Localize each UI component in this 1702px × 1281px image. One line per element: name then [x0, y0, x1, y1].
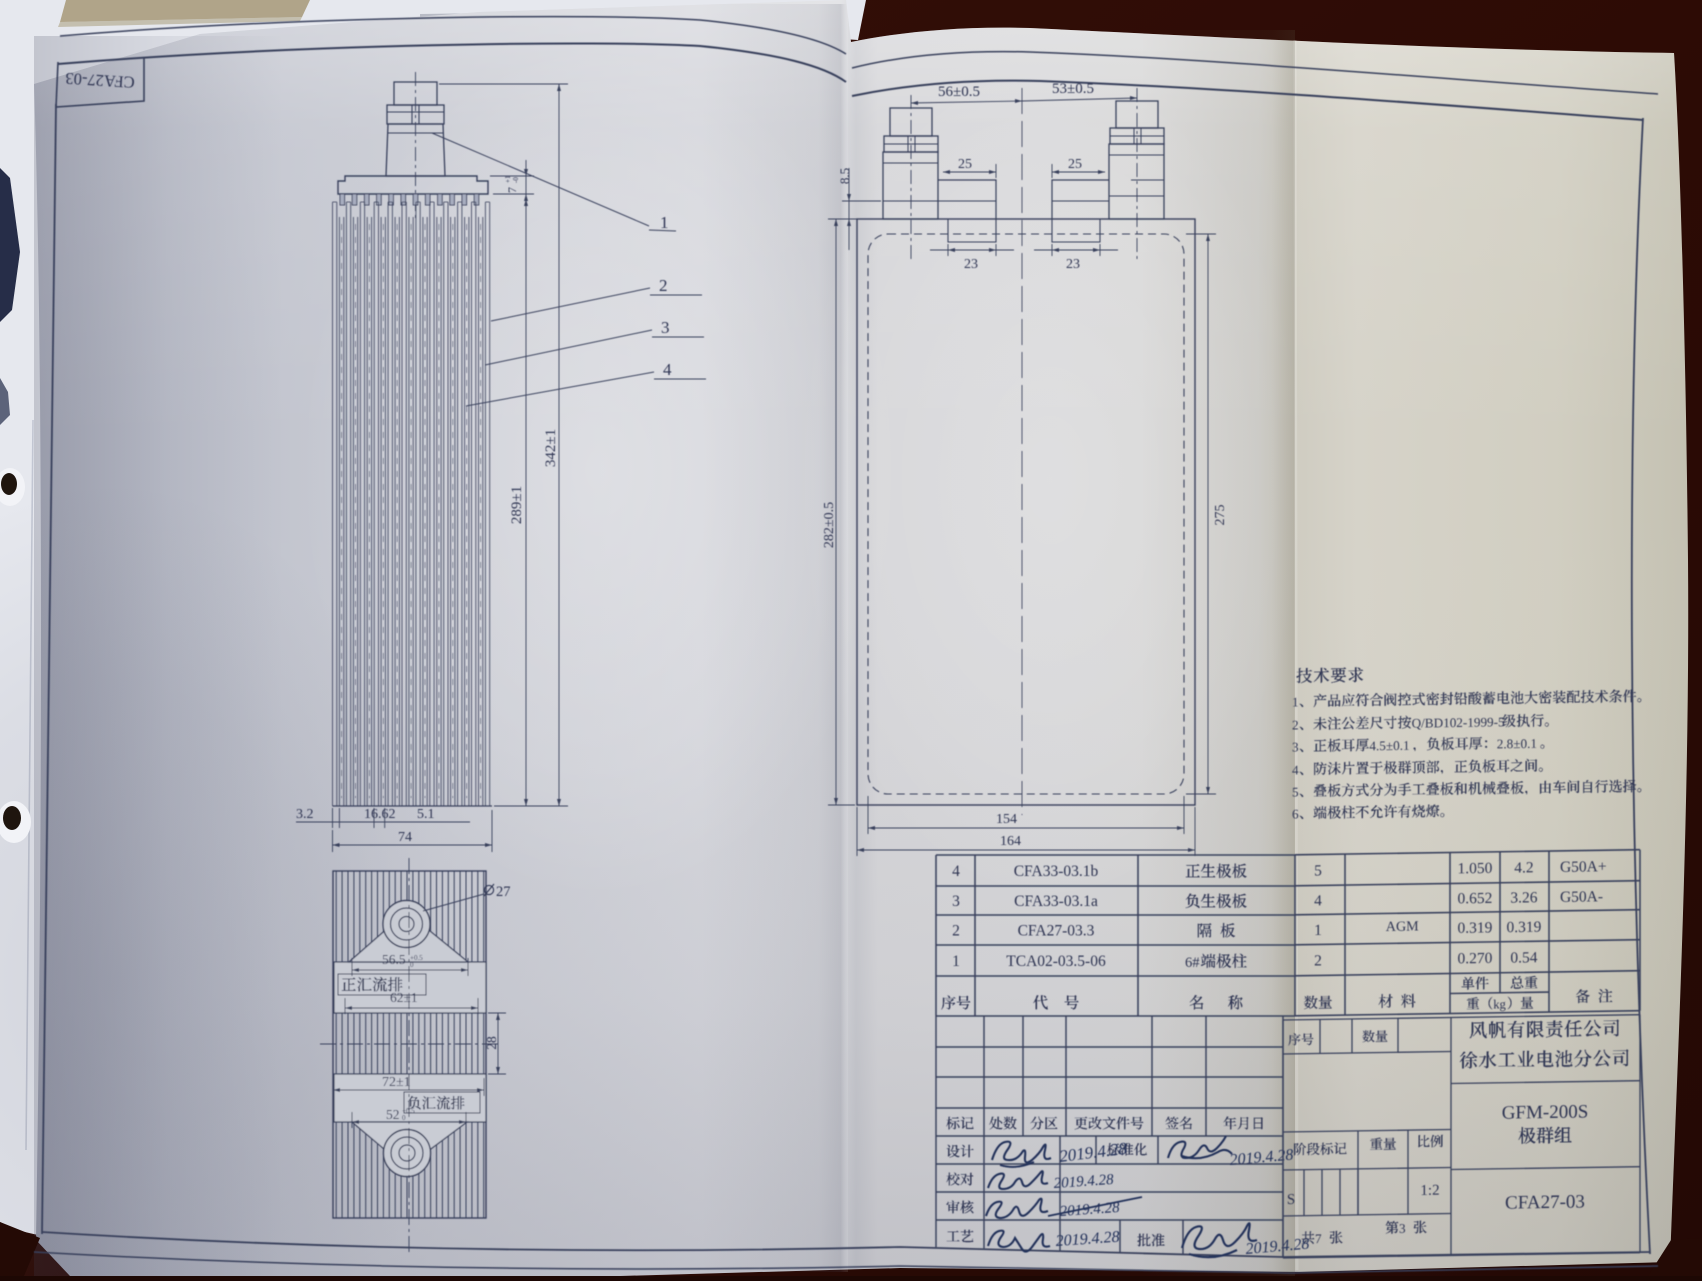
- svg-text:4: 4: [1314, 892, 1322, 909]
- svg-text:2: 2: [1292, 717, 1299, 732]
- svg-text:0: 0: [402, 1114, 406, 1122]
- svg-text:282±0.5: 282±0.5: [822, 502, 837, 548]
- svg-text:3: 3: [952, 893, 960, 910]
- svg-text:16.62: 16.62: [364, 807, 396, 822]
- svg-text:TCA02-03.5-06: TCA02-03.5-06: [1006, 953, 1106, 970]
- svg-text:2: 2: [659, 276, 668, 295]
- svg-text:4.2: 4.2: [1514, 859, 1533, 876]
- svg-text:-0: -0: [512, 177, 520, 183]
- svg-text:275: 275: [1213, 505, 1228, 526]
- svg-text:G50A-: G50A-: [1560, 888, 1603, 906]
- svg-text:53±0.5: 53±0.5: [1052, 81, 1094, 97]
- svg-text:0.270: 0.270: [1458, 950, 1493, 968]
- svg-text:23: 23: [1066, 257, 1080, 272]
- svg-text:27: 27: [496, 884, 511, 900]
- svg-text:0: 0: [410, 961, 414, 969]
- svg-text:CFA27-03: CFA27-03: [1505, 1192, 1585, 1214]
- svg-text:0.319: 0.319: [1507, 919, 1542, 937]
- svg-text:2: 2: [1314, 952, 1322, 969]
- svg-text:CFA27-03.3: CFA27-03.3: [1018, 923, 1095, 940]
- svg-text:28: 28: [484, 1036, 499, 1050]
- svg-text:G50A+: G50A+: [1560, 858, 1607, 876]
- svg-text:3: 3: [1292, 739, 1299, 754]
- svg-text:56.5: 56.5: [382, 952, 406, 967]
- svg-text:72±1: 72±1: [382, 1075, 411, 1090]
- svg-text:2: 2: [952, 923, 960, 940]
- svg-text:3: 3: [1399, 1221, 1406, 1236]
- svg-text:4: 4: [952, 863, 960, 880]
- svg-text:154: 154: [996, 812, 1017, 827]
- svg-text:4: 4: [663, 360, 672, 379]
- svg-text:164: 164: [1000, 834, 1021, 849]
- svg-text:25: 25: [1068, 157, 1082, 172]
- svg-text:0.54: 0.54: [1510, 949, 1537, 966]
- svg-text:1:2: 1:2: [1420, 1183, 1439, 1199]
- svg-text:3: 3: [661, 318, 670, 337]
- svg-text:CFA33-03.1b: CFA33-03.1b: [1014, 863, 1099, 880]
- svg-text:4.5±0.1: 4.5±0.1: [1369, 738, 1409, 754]
- svg-text:8.5: 8.5: [837, 168, 852, 184]
- svg-text:342±1: 342±1: [543, 429, 559, 467]
- svg-text:1: 1: [1292, 694, 1299, 709]
- svg-text:6#: 6#: [1185, 955, 1200, 971]
- svg-text:CFA33-03.1a: CFA33-03.1a: [1014, 893, 1098, 910]
- svg-text:S: S: [1287, 1192, 1295, 1208]
- svg-text:52: 52: [386, 1107, 400, 1122]
- svg-text:3.2: 3.2: [296, 807, 314, 822]
- svg-text:AGM: AGM: [1386, 918, 1419, 934]
- svg-text:2.8±0.1: 2.8±0.1: [1497, 736, 1537, 752]
- svg-text:Q/BD102-1999-5: Q/BD102-1999-5: [1412, 714, 1505, 730]
- svg-text:1.050: 1.050: [1458, 860, 1493, 878]
- svg-text:6: 6: [1292, 806, 1299, 821]
- svg-text:kg: kg: [1493, 997, 1506, 1011]
- svg-text:56±0.5: 56±0.5: [938, 84, 980, 100]
- svg-text:1: 1: [660, 213, 669, 232]
- svg-text:62±1: 62±1: [390, 990, 418, 1005]
- svg-text:0.652: 0.652: [1458, 890, 1493, 908]
- svg-text:5.1: 5.1: [417, 807, 435, 822]
- svg-text:25: 25: [958, 157, 972, 172]
- svg-text:1: 1: [1314, 922, 1322, 939]
- svg-text:289±1: 289±1: [509, 486, 525, 524]
- svg-text:74: 74: [398, 830, 412, 845]
- svg-text:0.319: 0.319: [1458, 919, 1493, 937]
- svg-text:4: 4: [1292, 762, 1299, 777]
- svg-text:7: 7: [1315, 1231, 1322, 1246]
- svg-text:5: 5: [1292, 784, 1299, 799]
- svg-text:23: 23: [964, 257, 978, 272]
- svg-text:7: 7: [505, 187, 519, 193]
- svg-text:3.26: 3.26: [1510, 889, 1537, 906]
- svg-text:+1: +1: [504, 175, 512, 183]
- svg-text:5: 5: [1314, 862, 1322, 879]
- svg-text:GFM-200S: GFM-200S: [1502, 1101, 1589, 1123]
- svg-text:1: 1: [952, 953, 960, 970]
